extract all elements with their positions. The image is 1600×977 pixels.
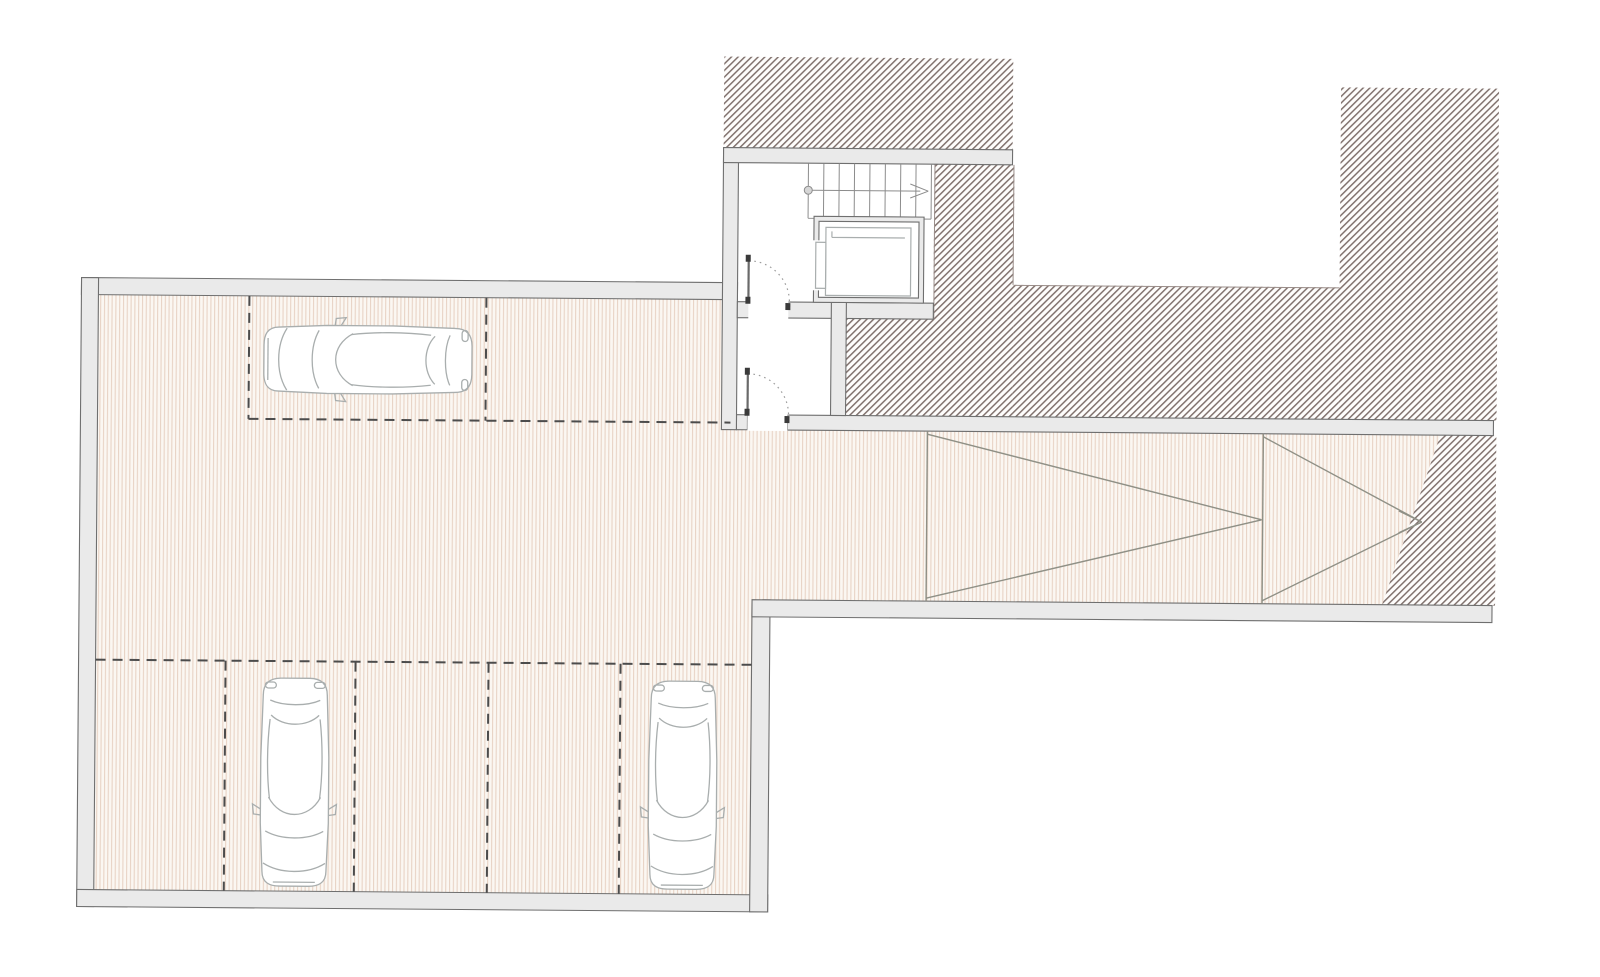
door-opening-upper [748, 301, 788, 319]
hatch-tall-right-block [1338, 87, 1499, 420]
stair-west-wall [721, 148, 738, 430]
stair-north-wall [723, 148, 1012, 165]
car-bottom-right [640, 681, 726, 890]
hatch-top-block [724, 57, 1014, 150]
car-top-row [264, 317, 473, 403]
floor-plan-drawing [0, 0, 1600, 977]
car-bottom-left [252, 678, 338, 887]
garage-east-wall [750, 600, 770, 912]
door-lower-swing-arc [748, 374, 789, 415]
vestibule-east-wall [831, 302, 847, 415]
stair-start-node [804, 186, 812, 194]
stair-direction-line [812, 190, 920, 191]
ramp-north-wall-left-piece [736, 415, 747, 430]
door-openings [747, 301, 788, 431]
hatch-mid-band [1013, 285, 1340, 420]
door-opening-lower [747, 414, 787, 431]
door-jamb-ticks [744, 255, 790, 423]
hatch-right-of-stair [933, 164, 1014, 320]
floor-plan-canvas [0, 0, 1600, 977]
door-upper-swing-arc [748, 261, 789, 302]
elevator-car-door [816, 242, 826, 288]
elevator [809, 216, 924, 303]
ramp-floor [752, 430, 1496, 606]
stairwell [804, 163, 931, 219]
hatch-right-of-vestibule [846, 319, 1014, 417]
doors [744, 255, 790, 423]
